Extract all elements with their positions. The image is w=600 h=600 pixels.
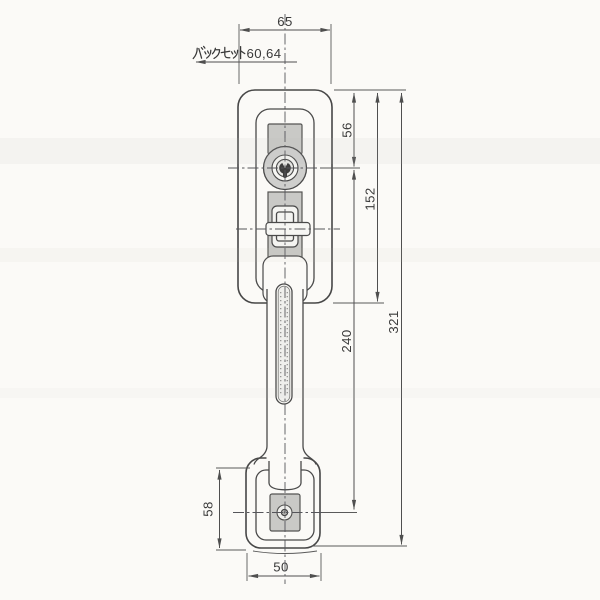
grip-right-edge [303,289,316,465]
dim-321-label: 321 [386,310,401,333]
grip-panel-inner [278,286,290,402]
scanned-drawing-page: 65 60,64 バックセット60,64 [0,0,600,600]
backset-value-label: 60,64 [247,46,282,61]
dim-50-label: 50 [273,560,288,575]
dim-240-label: 240 [339,329,354,352]
dim-58-label: 58 [201,501,216,516]
grip-left-edge [254,289,267,465]
dim-base-width: 50 [247,553,321,581]
dim-base-height: 58 [201,468,251,550]
dim-152-label: 152 [363,187,378,210]
dim-56-label: 56 [340,122,355,137]
stem-fill [269,460,301,488]
backset-label-kana [193,46,245,58]
lock-handle-technical-drawing: 65 60,64 バックセット60,64 [0,0,600,600]
backset-annotation: 60,64 バックセット60,64 [193,46,311,77]
